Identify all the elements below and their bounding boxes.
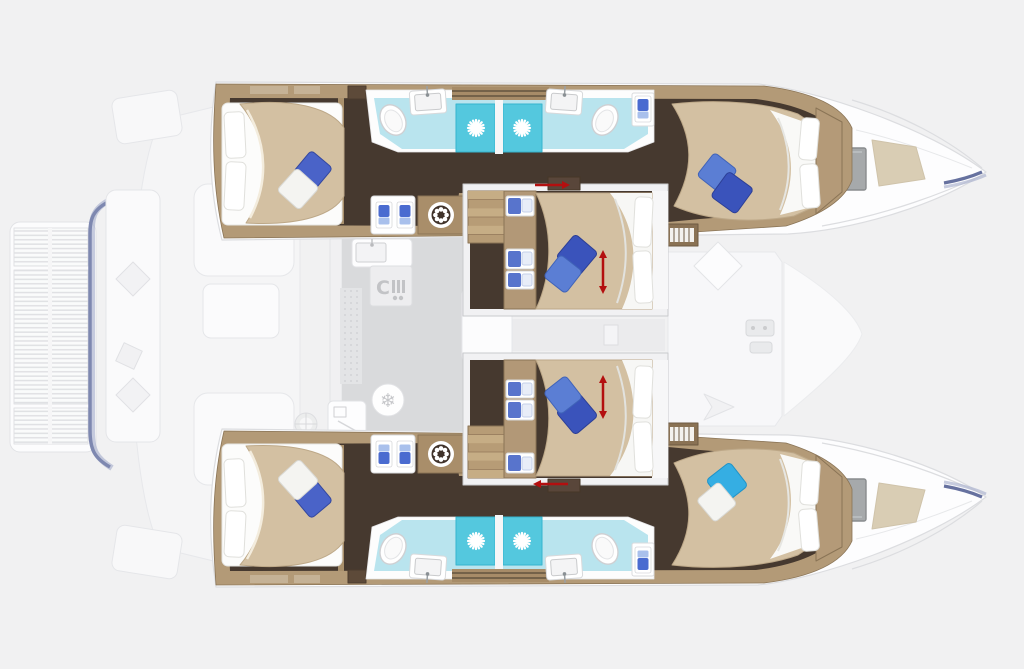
drawer-3 — [506, 271, 534, 289]
forepeak-deck — [784, 262, 862, 416]
aft-cabin-bed — [222, 102, 344, 225]
hull-step-box — [666, 224, 698, 246]
bathroom-block — [366, 85, 654, 154]
drawer-2 — [506, 249, 534, 269]
shower-drain-icon-2 — [514, 120, 530, 136]
cabin-head-wall — [652, 191, 668, 309]
center-cabin-bed — [536, 193, 653, 309]
cabinet-drawers — [504, 191, 536, 309]
shower-locker — [452, 87, 549, 100]
cabin-stairs-icon — [468, 191, 506, 243]
catamaran-floorplan: Catamaran accommodation floor plan — top… — [0, 0, 1024, 669]
wardrobe-icon-corridor — [371, 196, 415, 234]
platform-slats — [14, 228, 88, 444]
drawer — [506, 196, 534, 216]
shower-drain-icon — [468, 120, 484, 136]
transom-step-port — [111, 89, 183, 145]
foredeck — [668, 242, 862, 426]
snowflake-icon: ❄ — [380, 390, 396, 412]
hull-window-slot-2 — [294, 86, 320, 94]
wardrobe-icon-fwd — [632, 93, 654, 126]
saloon-window-panel — [340, 288, 362, 384]
pillow-white-head-2 — [633, 251, 654, 304]
pillow-white-head — [224, 112, 246, 159]
svg-text:C: C — [376, 277, 390, 299]
transom-step-starboard — [111, 524, 183, 580]
center-cabin-forward-top — [463, 177, 668, 316]
windlass-icon — [746, 320, 774, 353]
forward-cabin-bed — [672, 102, 842, 220]
floorplan-stage: Catamaran accommodation floor plan — top… — [0, 0, 1024, 669]
pillow-white-head-2 — [224, 162, 246, 211]
deck-hatch — [348, 86, 366, 99]
pillow-white-head-2 — [799, 163, 820, 208]
center-cabin-forward-bottom — [463, 353, 668, 492]
shower-divider — [495, 100, 503, 154]
cockpit-center-table — [203, 284, 279, 338]
saloon-hatch — [604, 325, 618, 345]
pillow-white-head — [798, 117, 820, 160]
stern-platform — [10, 200, 112, 468]
pillow-white-head — [633, 197, 654, 248]
ship-wheel-icon — [428, 202, 454, 228]
hull-window-slot — [250, 86, 288, 94]
